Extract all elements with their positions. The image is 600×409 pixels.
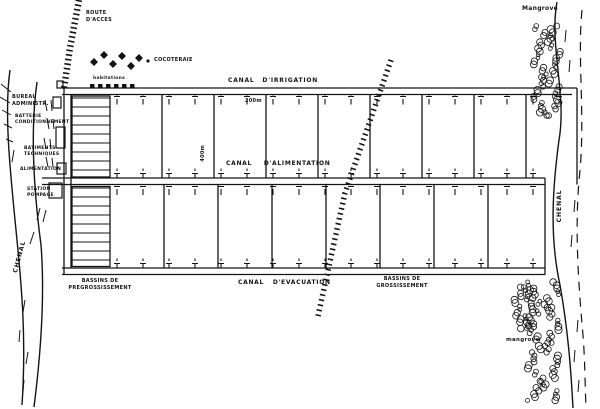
label-canal-alimentation: CANAL D'ALIMENTATION [226, 160, 330, 168]
label-station-pompage: STATION POMPAGE [27, 187, 54, 199]
label-habitations: habitations [93, 76, 125, 82]
pregrow-basins-bottom [72, 187, 110, 267]
label-cocoteraie: COCOTERAIE [154, 57, 193, 64]
label-batiments-techniques: BATIMENTS TECHNIQUES [24, 146, 59, 158]
label-dim-200m: 200m [245, 98, 262, 105]
label-canal-irrigation: CANAL D'IRRIGATION [228, 77, 318, 85]
site-plan-drawing [0, 0, 600, 409]
label-bassins-grossissement: BASSINS DE GROSSISSEMENT [362, 276, 442, 289]
site-plan-figure: ROUTE D'ACCES COCOTERAIE habitations BUR… [0, 0, 600, 409]
alimentation-canal-line [42, 178, 545, 185]
gate-ticks [112, 96, 570, 268]
label-chenal-right: CHENAL [556, 181, 564, 231]
label-canal-evacuation: CANAL D'EVACUATION [238, 279, 331, 287]
pregrow-basins-top [72, 96, 110, 177]
label-bureau-administratif: BUREAU ADMINISTR. [12, 94, 49, 107]
label-mangrove-top: Mangrove [522, 5, 558, 13]
coconut-grove-marks [90, 51, 150, 70]
evacuation-canal-line [62, 268, 545, 275]
label-route-acces: ROUTE D'ACCES [86, 10, 112, 23]
pond-grid [42, 88, 577, 275]
irrigation-canal-line [62, 88, 577, 95]
label-dim-400m: 400m [200, 136, 207, 170]
label-alimentation: ALIMENTATION [20, 167, 61, 173]
label-batterie-conditionnement: BATTERIE CONDITIONNEMENT [15, 114, 69, 126]
access-road [64, 0, 79, 88]
label-mangrove-bottom: mangrove [506, 337, 540, 344]
label-bassins-pregrossissement: BASSINS DE PREGROSSISSEMENT [56, 278, 144, 291]
